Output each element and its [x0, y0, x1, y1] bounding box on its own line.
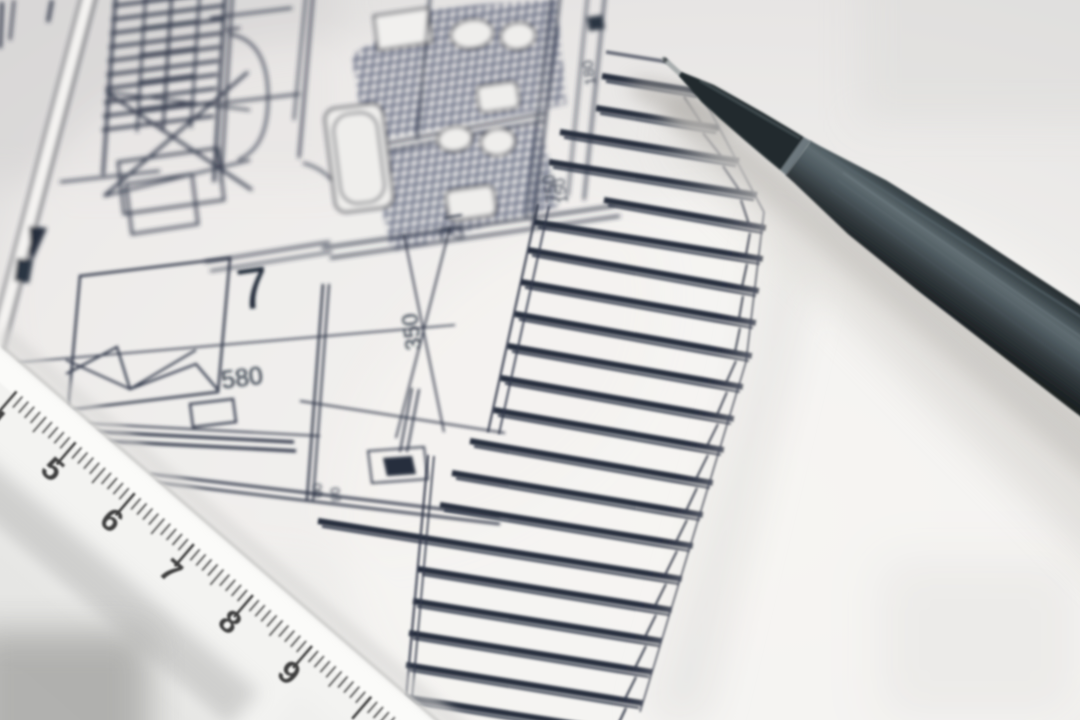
svg-text:350: 350 — [397, 312, 426, 351]
svg-text:580: 580 — [220, 362, 265, 395]
svg-text:00: 00 — [309, 482, 326, 498]
svg-text:80: 80 — [327, 486, 344, 502]
